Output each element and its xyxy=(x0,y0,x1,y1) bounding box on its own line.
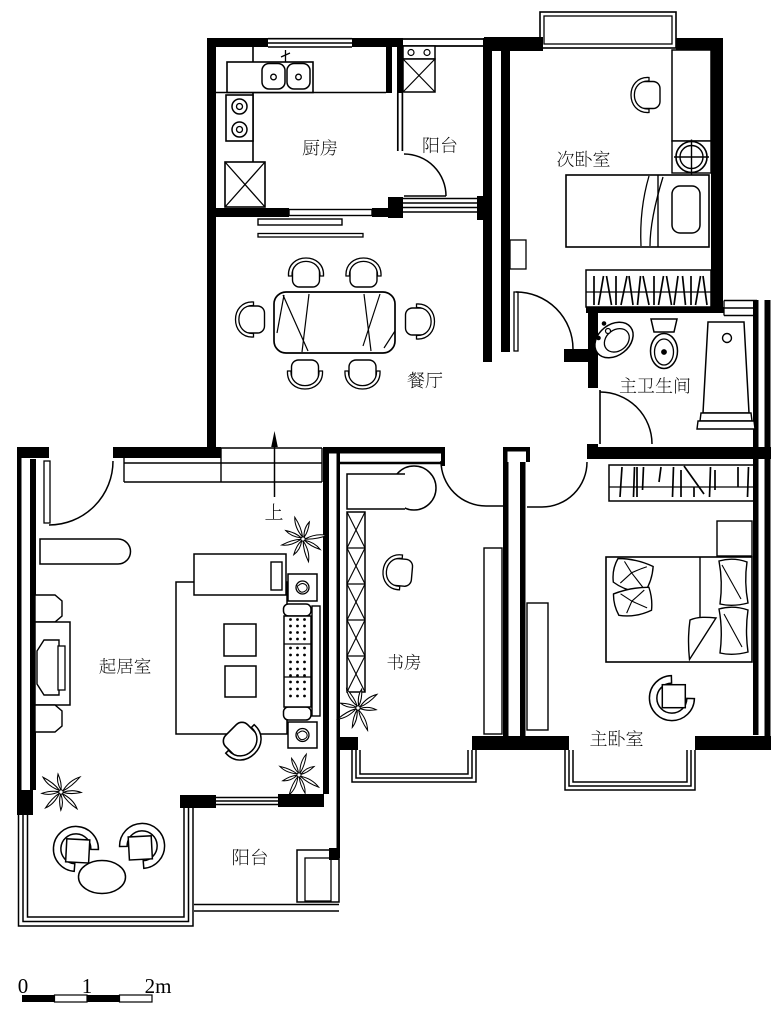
svg-text:0: 0 xyxy=(18,974,29,998)
